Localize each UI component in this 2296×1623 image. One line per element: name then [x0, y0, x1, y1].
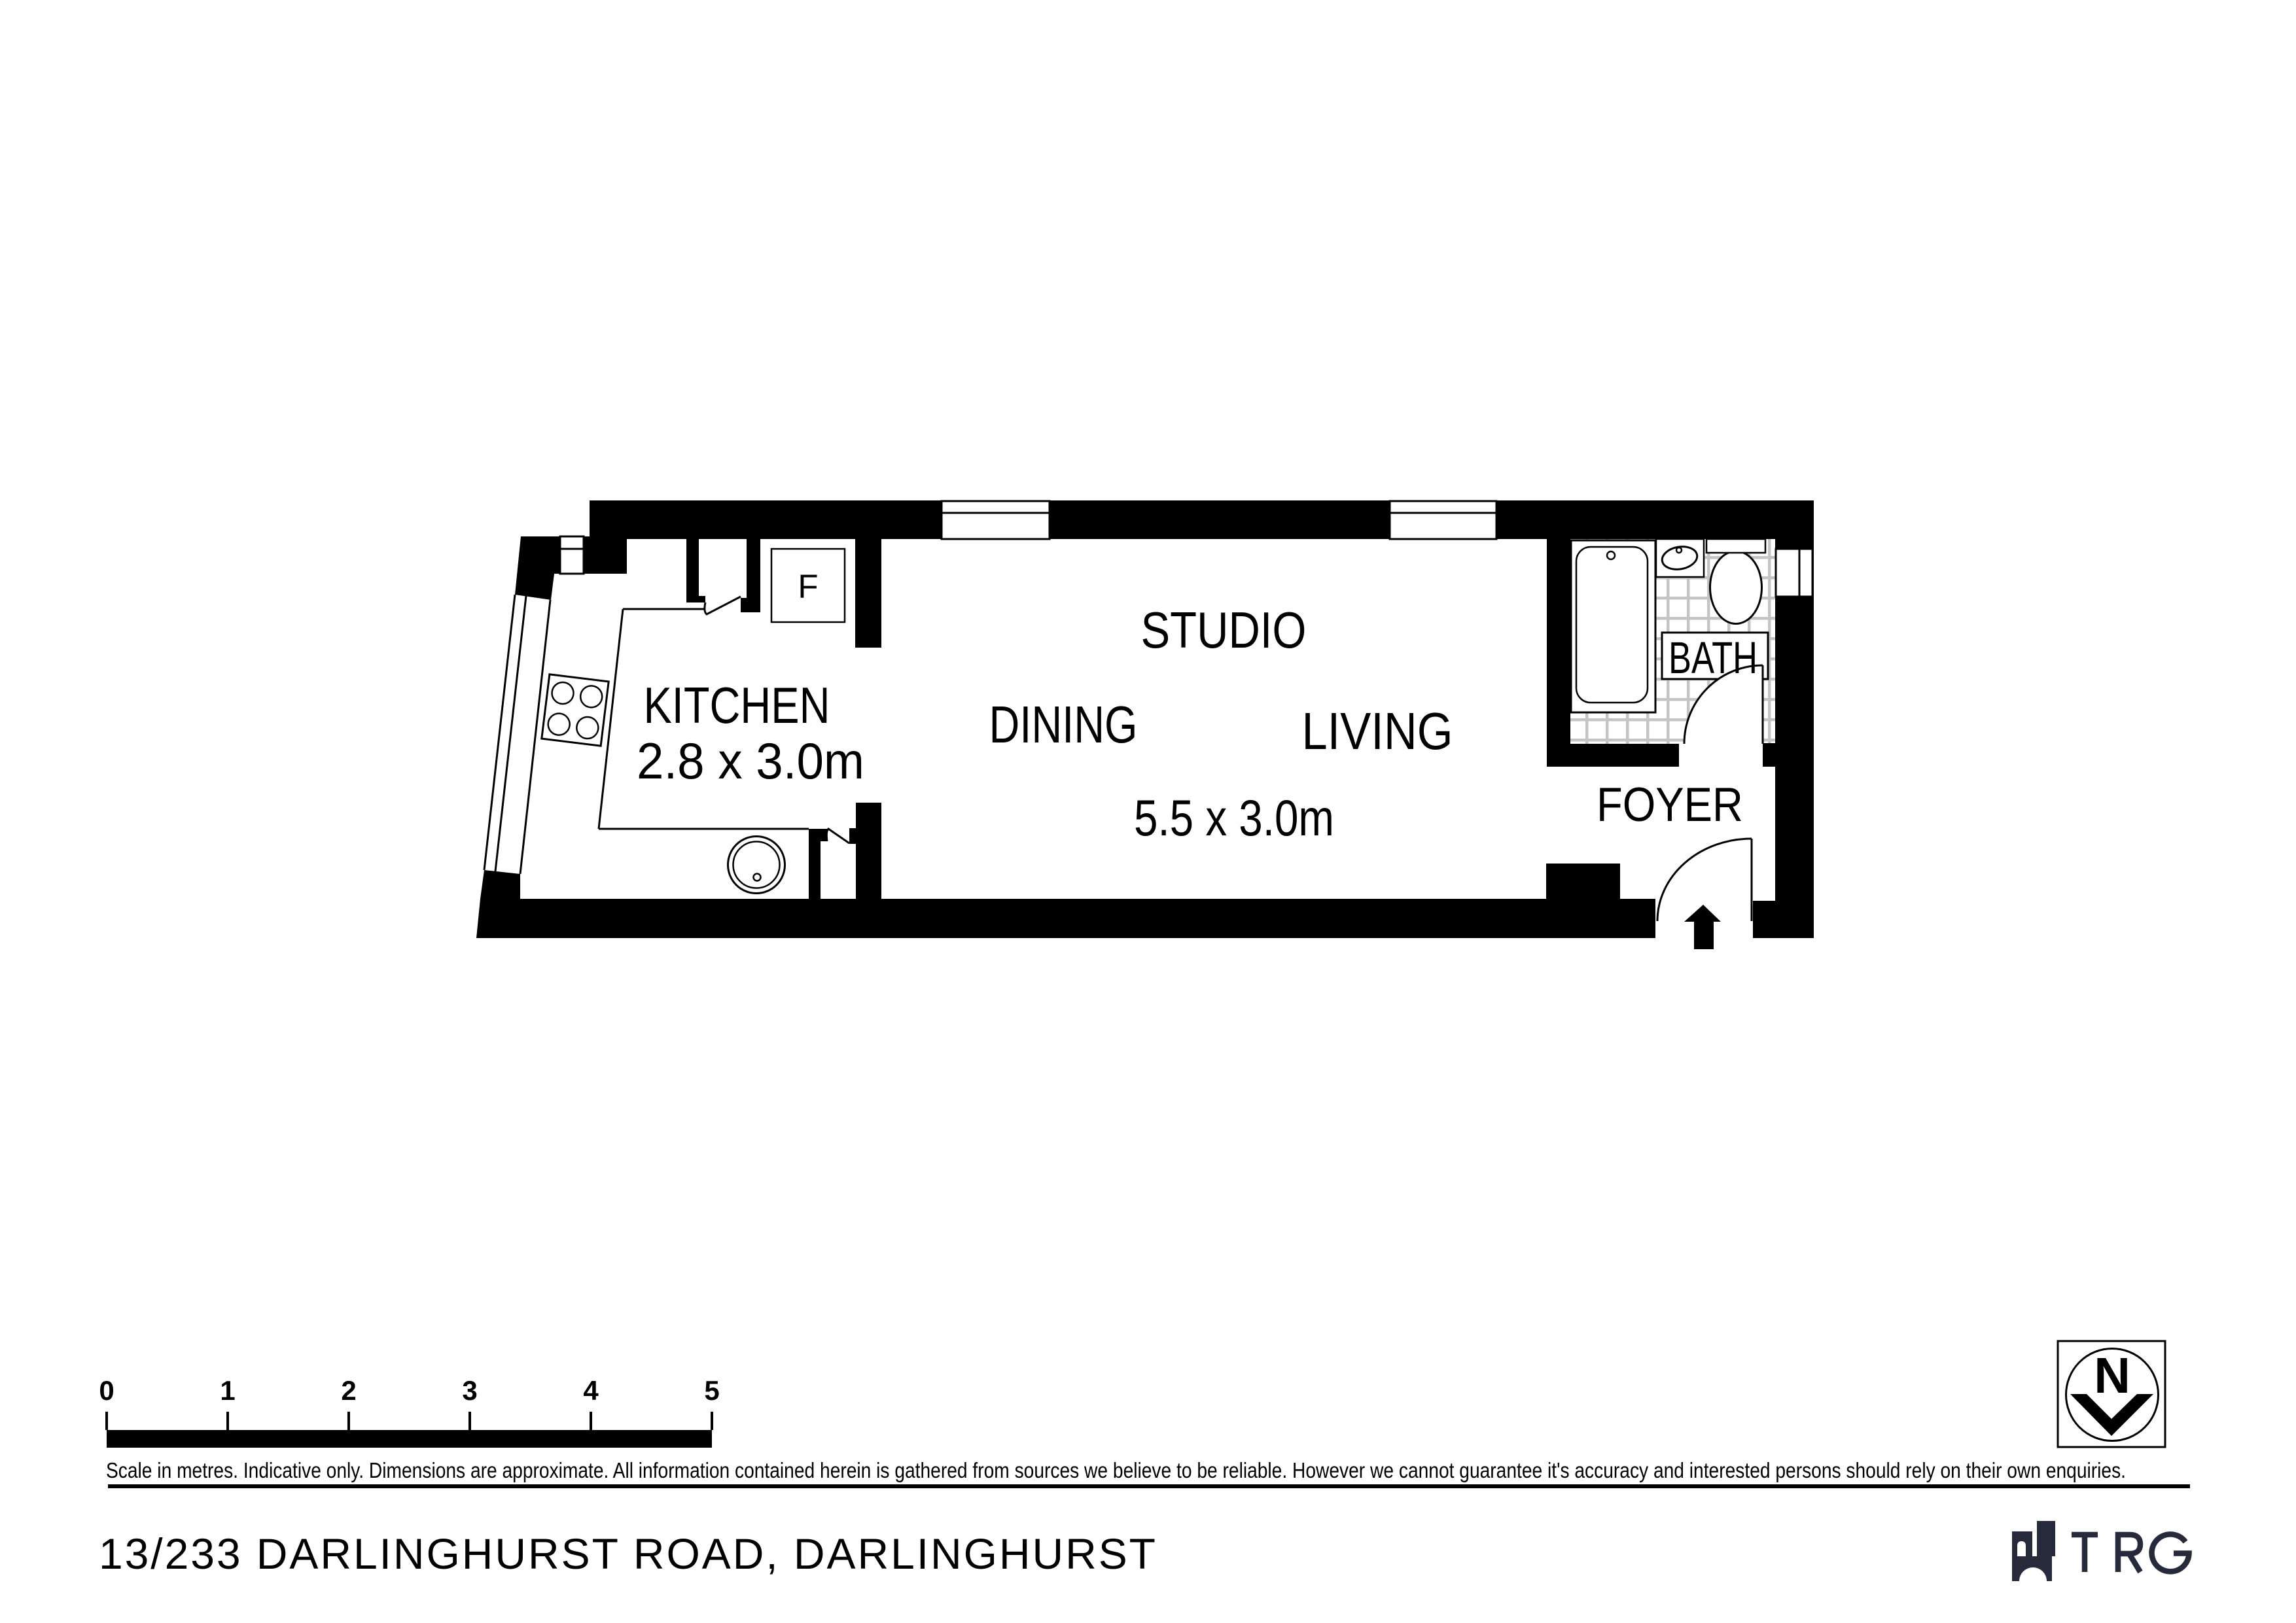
svg-text:5.5 x 3.0m: 5.5 x 3.0m [1134, 789, 1334, 846]
svg-text:F: F [798, 568, 818, 605]
svg-text:1: 1 [220, 1375, 235, 1406]
svg-text:STUDIO: STUDIO [1141, 601, 1307, 659]
svg-text:KITCHEN: KITCHEN [644, 676, 830, 734]
svg-text:BATH: BATH [1669, 633, 1757, 683]
svg-text:4: 4 [583, 1375, 599, 1406]
svg-text:2.8 x 3.0m: 2.8 x 3.0m [637, 732, 864, 790]
svg-text:Scale in metres. Indicative on: Scale in metres. Indicative only. Dimens… [106, 1459, 2126, 1483]
svg-text:FOYER: FOYER [1597, 778, 1743, 831]
svg-text:13/233 DARLINGHURST ROAD, DARL: 13/233 DARLINGHURST ROAD, DARLINGHURST [99, 1529, 1156, 1578]
svg-text:5: 5 [704, 1375, 719, 1406]
svg-text:N: N [2094, 1348, 2130, 1404]
svg-text:DINING: DINING [989, 695, 1138, 754]
svg-text:2: 2 [341, 1375, 356, 1406]
svg-text:0: 0 [99, 1375, 114, 1406]
svg-text:LIVING: LIVING [1302, 702, 1453, 760]
svg-text:3: 3 [462, 1375, 477, 1406]
